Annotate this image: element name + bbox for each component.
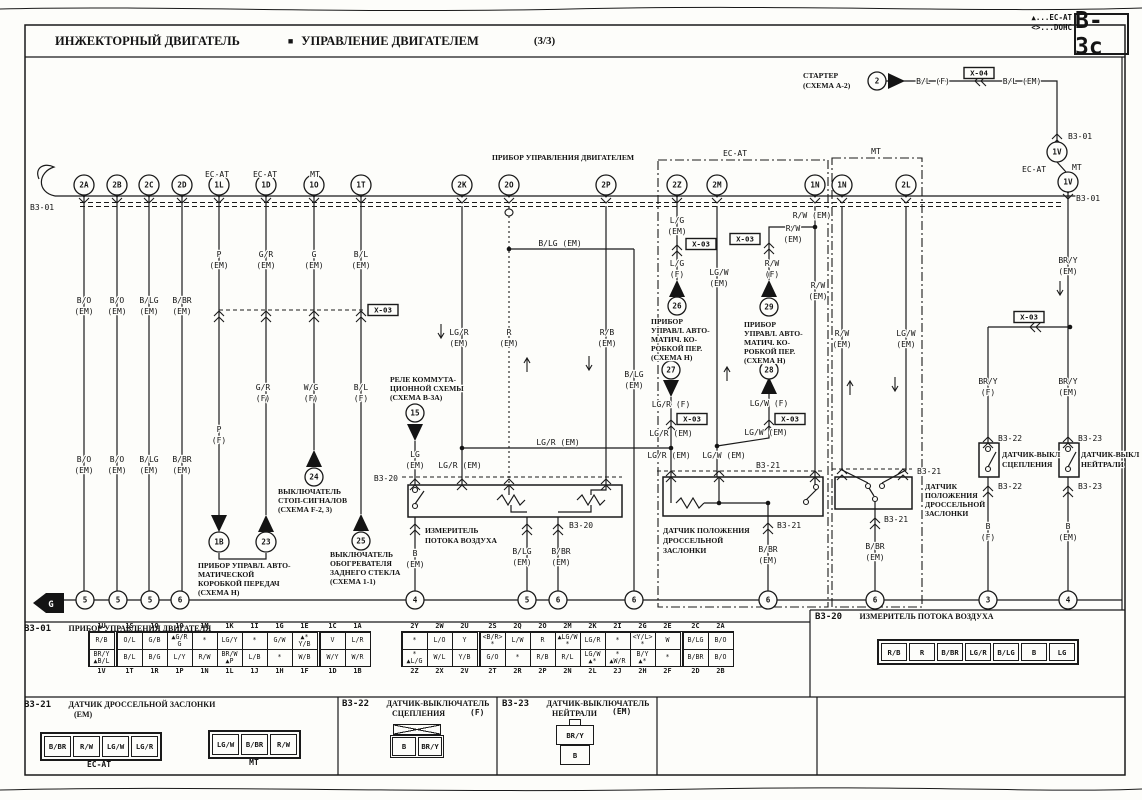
b320-section-header: B3-20 ИЗМЕРИТЕЛЬ ПОТОКА ВОЗДУХА [815, 612, 994, 622]
diagram-label: B/LG [139, 296, 158, 305]
diagram-label: ДАТЧИК-ВЫКЛ [1002, 450, 1061, 459]
pin-circle-label: 1T [356, 181, 366, 190]
diagram-label: ПРИБОР [744, 320, 776, 329]
diagram-label: B3-21 [756, 461, 780, 470]
diagram-label: ДАТЧИК-ВЫКЛ [1081, 450, 1140, 459]
pin-id: 1R [142, 667, 167, 676]
diagram-label: LG/R (EM) [438, 461, 481, 470]
diagram-label: LG/R [449, 328, 468, 337]
diagram-label: B3-22 [998, 434, 1022, 443]
pin-id: 2D [683, 667, 708, 676]
wire-labels: СТАРТЕР(СХЕМА А-2)B/L (F)B/L (EM)B3-01EC… [30, 71, 1140, 610]
diagram-label: (EM) [74, 466, 93, 475]
b323-connector: BR/YB [556, 719, 594, 765]
diagram-label: B/BR [172, 455, 191, 464]
pin-cell: LG/W ▲* [580, 649, 606, 667]
b320-code: B3-20 [815, 612, 842, 622]
diagram-label: ДРОССЕЛЬНОЙ [663, 536, 723, 545]
bullet-icon: ■ [288, 36, 293, 46]
pin-id: 1V [89, 667, 114, 676]
diagram-label: (EM) [304, 261, 323, 270]
b301-column: 2WL/OW/L2X [427, 632, 452, 666]
pin-cell: W [655, 632, 681, 650]
pin-id: 1B [345, 667, 370, 676]
b301-column: 2CB/LGB/BR2D [680, 632, 708, 666]
diagram-label: (F) [765, 270, 779, 279]
pin-cell: G/B [142, 632, 168, 650]
diagram-label: (EM) [709, 279, 728, 288]
airflow-meter-box [408, 485, 622, 517]
diagram-label: EC-AT [723, 149, 747, 158]
diagram-label: B/L (F) [916, 77, 950, 86]
pin-cell: B/Y ▲* [630, 649, 656, 667]
b323-title-1: ДАТЧИК-ВЫКЛЮЧАТЕЛЬ [547, 699, 650, 708]
pin-cell: LG/R [580, 632, 606, 650]
b301-column: 2M▲LG/W *R/L2N [555, 632, 580, 666]
diagram-label: B3-23 [1078, 434, 1102, 443]
pin-circle-label: 6 [556, 596, 561, 605]
b301-column: 2ORR/B2P [530, 632, 555, 666]
diagram-label: LG [410, 450, 420, 459]
diagram-label: R/W [765, 259, 780, 268]
pin-cell: L/Y [167, 649, 193, 667]
connector-code-label: X-04 [970, 69, 988, 78]
pin-cell: W/R [345, 649, 371, 667]
diagram-label: (EM) [865, 553, 884, 562]
diagram-label: (EM) [1058, 388, 1077, 397]
pin-id: 1T [117, 667, 142, 676]
pin-id: 2C [683, 622, 708, 631]
page-code: B-3c [1075, 14, 1128, 54]
b301-column: 2KLG/RLG/W ▲*2L [580, 632, 605, 666]
pin-id: 1K [217, 622, 242, 631]
b322-cells: BBR/Y [390, 735, 444, 758]
b321-ecat-caption: EC-AT [40, 760, 158, 769]
b301-column: 1QG/BB/G1R [142, 632, 167, 666]
diagram-label: L/G [670, 216, 685, 225]
pin-cell: <Y/L> * [630, 632, 656, 650]
pin-circle-label: 1N [810, 181, 820, 190]
diagram-label: MT [310, 170, 320, 179]
pin-id: 2E [655, 622, 680, 631]
pin-cell: * [242, 632, 268, 650]
pin-cell: W/L [427, 649, 453, 667]
flow-arrow-icon [847, 381, 853, 395]
pin-circle-label: 5 [148, 596, 153, 605]
b301-column: 1KLG/YBR/W ▲P1L [217, 632, 242, 666]
mt-option-box [832, 158, 922, 607]
pin-id: 2R [505, 667, 530, 676]
diagram-label: B/BR [551, 547, 570, 556]
pin-id: 2B [708, 667, 733, 676]
diagram-label: B/L [354, 383, 369, 392]
pin-circle-label: 6 [632, 596, 637, 605]
diagram-label: B3-22 [998, 482, 1022, 491]
b301-block: 2Y** ▲L/G2Z2WL/OW/L2X2UYY/B2V2S<B/R> *G/… [401, 631, 734, 667]
pin-cell: LG/Y [217, 632, 243, 650]
diagram-label: (EM) [597, 339, 616, 348]
b301-code: B3-01 [24, 624, 51, 634]
pin-circle-label: 2Z [672, 181, 682, 190]
pin-cell: B/LG [683, 632, 709, 650]
diagram-label: (EM) [896, 340, 915, 349]
b321-mt-caption: MT [208, 758, 300, 767]
diagram-label: EC-AT [1022, 165, 1046, 174]
connector-code-label: X-03 [1020, 313, 1038, 322]
b320-connector: R/BRB/BRLG/RB/LGBLG [877, 639, 1079, 665]
b321-mt-connector: LG/WB/BRR/W [208, 730, 301, 759]
b322-code: B3-22 [342, 699, 369, 709]
pin-cell: * [655, 649, 681, 667]
pin-cell: * ▲W/R [605, 649, 631, 667]
diagram-label: MT [871, 147, 881, 156]
diagram-label: (СХЕМА А-2) [803, 81, 851, 90]
pin-cell: W/B [292, 649, 318, 667]
pin-cell: L/R [345, 632, 371, 650]
pin-cell: Y [452, 632, 478, 650]
pin-cell: * [505, 649, 531, 667]
diagram-label: СТОП-СИГНАЛОВ [278, 496, 347, 505]
pin-cell: L/B [242, 649, 268, 667]
diagram-label: B/LG (EM) [538, 239, 581, 248]
wiring-diagram-canvas: X-04X-03X-03X-03X-03X-03X-03 2A2B2C2D1L1… [0, 0, 1142, 800]
diagram-label: EC-AT [205, 170, 229, 179]
diagram-label: B3-21 [884, 515, 908, 524]
diagram-label: ЗАДНЕГО СТЕКЛА [330, 568, 401, 577]
pin-cell: BR/Y [418, 737, 442, 756]
pin-circle-label: 28 [764, 366, 774, 375]
diagram-label: B/O [110, 296, 125, 305]
diagram-label: ДАТЧИК ПОЛОЖЕНИЯ [663, 526, 750, 535]
pin-id: 1I [242, 622, 267, 631]
pin-cell: B/O [708, 632, 734, 650]
inline-connector-codes: X-04X-03X-03X-03X-03X-03X-03 [368, 68, 1044, 425]
pin-circle-label: 24 [309, 473, 319, 482]
pin-circle-label: 6 [178, 596, 183, 605]
junction-dot [715, 444, 720, 449]
diagram-label: (EM) [107, 466, 126, 475]
diagram-label: РОБКОЙ ПЕР. [651, 344, 702, 353]
pin-cell: B [1021, 643, 1047, 661]
legend-dohc: <>...DOHC [1012, 23, 1072, 33]
tps-ecat-box [663, 477, 823, 516]
diagram-label: (EM) [783, 235, 802, 244]
pin-circle-label: 1D [261, 181, 271, 190]
pin-circle-label: 2D [177, 181, 187, 190]
diagram-label: R [507, 328, 512, 337]
pin-circle-label: 2K [457, 181, 467, 190]
flow-arrow-icon [586, 356, 592, 370]
connector-code-label: X-03 [692, 240, 710, 249]
b301-column: 2I** ▲W/R2J [605, 632, 630, 666]
pin-id: 2Q [505, 622, 530, 631]
pin-id: 2K [580, 622, 605, 631]
b301-column: 2UYY/B2V [452, 632, 477, 666]
diagram-label: P [217, 250, 222, 259]
b301-column: 1UR/BBR/Y ▲B/L1V [89, 632, 114, 666]
diagram-label: МАТИЧЕСКОЙ [198, 570, 254, 579]
diagram-label: R/B [600, 328, 615, 337]
diagram-label: G [312, 250, 317, 259]
pin-id: 2M [555, 622, 580, 631]
pin-circle-label: 1V [1052, 148, 1062, 157]
flow-arrow-icon [892, 377, 898, 391]
diagram-label: B [1066, 522, 1071, 531]
pin-id: 2N [555, 667, 580, 676]
pin-cell: G/W [267, 632, 293, 650]
diagram-label: (EM) [512, 558, 531, 567]
diagram-label: LG/R (F) [652, 400, 691, 409]
diagram-label: (EM) [172, 466, 191, 475]
diagram-label: G [48, 600, 53, 610]
pin-cell: B [392, 737, 416, 756]
diagram-label: BR/Y [1058, 377, 1077, 386]
pin-cell: O/L [117, 632, 143, 650]
pin-circle-label: 3 [986, 596, 991, 605]
diagram-label: КОРОБКОЙ ПЕРЕДАЧ [198, 579, 280, 588]
pin-circle-label: 1N [837, 181, 847, 190]
pin-id: 2G [630, 622, 655, 631]
diagram-label: ПОЛОЖЕНИЯ [925, 491, 978, 500]
pin-id: 1Q [142, 622, 167, 631]
diagram-label: ПРИБОР УПРАВЛ. АВТО- [198, 561, 291, 570]
diagram-label: BR/Y [1058, 256, 1077, 265]
pin-circle-label: 2P [601, 181, 611, 190]
diagram-label: (EM) [139, 466, 158, 475]
connector-arrow-icons [211, 73, 905, 532]
diagram-label: (СХЕМА Н) [198, 588, 240, 597]
diagram-label: (EM) [107, 307, 126, 316]
diagram-label: УПРАВЛ. АВТО- [744, 329, 803, 338]
junction-dot [669, 446, 674, 451]
diagram-label: B/L (EM) [1003, 77, 1042, 86]
junction-dot [766, 501, 771, 506]
b321-ecat-connector: B/BRR/WLG/WLG/R [40, 732, 162, 761]
pin-cell: R/L [555, 649, 581, 667]
pin-cell: L/W [505, 632, 531, 650]
diagram-label: (EM) [449, 339, 468, 348]
pin-id: 2T [480, 667, 505, 676]
pin-id: 2A [708, 622, 733, 631]
diagram-label: MT [1072, 163, 1082, 172]
pin-cell: LG/W [212, 734, 239, 755]
flow-arrow-icon [524, 358, 530, 372]
flow-arrow-icon [438, 324, 444, 338]
pin-id: 2Y [402, 622, 427, 631]
diagram-label: (F) [304, 394, 318, 403]
diagram-label: (F) [981, 533, 995, 542]
connector-code-label: X-03 [781, 415, 799, 424]
diagram-label: EC-AT [253, 170, 277, 179]
pin-circle-label: 2 [875, 77, 880, 86]
diagram-label: B/L [354, 250, 369, 259]
pin-circle-label: 2L [901, 181, 911, 190]
diagram-label: УПРАВЛ. АВТО- [651, 326, 710, 335]
diagram-label: ДРОССЕЛЬНОЙ [925, 500, 985, 509]
diagram-label: (EM) [351, 261, 370, 270]
diagram-label: СЦЕПЛЕНИЯ [1002, 460, 1053, 469]
diagram-label: B/O [77, 455, 92, 464]
diagram-label: B/BR [865, 542, 884, 551]
b301-column: 2EW*2F [655, 632, 680, 666]
pin-circle-label: 2M [712, 181, 722, 190]
junction-dot [717, 501, 722, 506]
title-band: ИНЖЕКТОРНЫЙ ДВИГАТЕЛЬ ■ УПРАВЛЕНИЕ ДВИГА… [25, 25, 1075, 57]
page-counter: (3/3) [534, 35, 555, 47]
pin-cell: LG/W [102, 736, 129, 757]
pin-cell: ▲LG/W * [555, 632, 581, 650]
pin-id: 2W [427, 622, 452, 631]
pin-id: 1H [267, 667, 292, 676]
b323-sub: (ЕМ) [612, 707, 631, 716]
diagram-label: ЗАСЛОНКИ [925, 509, 968, 518]
pin-circle-label: 1B [214, 538, 224, 547]
pin-id: 1N [192, 667, 217, 676]
diagram-label: ДАТЧИК [925, 482, 958, 491]
b322-sub: (F) [470, 708, 484, 717]
pin-circle-label: 26 [672, 302, 682, 311]
pin-cell: R/B [881, 643, 907, 661]
connector-arrow-icon [888, 73, 905, 89]
diagram-label: (EM) [405, 461, 424, 470]
pin-cell: R [909, 643, 935, 661]
pin-circle-label: 1O [309, 181, 319, 190]
diagram-label: РЕЛЕ КОММУТА- [390, 375, 457, 384]
diagram-label: B/O [77, 296, 92, 305]
pin-cell: R/B [530, 649, 556, 667]
b323-title-2: НЕЙТРАЛИ [552, 709, 649, 718]
flow-arrow-icon [1057, 281, 1063, 295]
diagram-label: (СХЕМА Н) [744, 356, 786, 365]
pin-cell: Y/B [452, 649, 478, 667]
b301-column: 2AB/OB/O2B [708, 632, 733, 666]
junction-dot [507, 247, 512, 252]
b301-column: 1CVW/Y1D [317, 632, 345, 666]
pin-id: 2O [530, 622, 555, 631]
diagram-label: B/BR [172, 296, 191, 305]
diagram-label: (EM) [1058, 533, 1077, 542]
pin-cell: BR/Y ▲B/L [89, 649, 115, 667]
flow-arrow-icon [724, 367, 730, 381]
diagram-label: R/W [811, 281, 826, 290]
pin-cell: * [402, 632, 428, 650]
pin-cell: ▲G/R G [167, 632, 193, 650]
diagram-label: ОБОГРЕВАТЕЛЯ [330, 559, 392, 568]
connector-crossing-icon [898, 469, 908, 480]
pin-id: 2X [427, 667, 452, 676]
diagram-label: LG/W [709, 268, 728, 277]
pin-id: 1D [320, 667, 345, 676]
diagram-label: ПРИБОР [651, 317, 683, 326]
diagram-label: ИЗМЕРИТЕЛЬ [425, 526, 478, 535]
clutch-switch-box [979, 443, 999, 477]
connector-arrow-icon [407, 424, 423, 441]
pin-cell: B/BR [937, 643, 963, 661]
pin-id: 1F [292, 667, 317, 676]
pin-cell: ▲* Y/B [292, 632, 318, 650]
pin-cell: B [560, 745, 590, 765]
diagram-label: (F) [670, 270, 684, 279]
pin-id: 2I [605, 622, 630, 631]
pin-cell: B/O [708, 649, 734, 667]
neutral-switch-box [1059, 443, 1079, 477]
pin-id: 1G [267, 622, 292, 631]
b301-column: 2QL/W*2R [505, 632, 530, 666]
diagram-label: (EM) [256, 261, 275, 270]
pin-cell: W/Y [320, 649, 346, 667]
diagram-label: B3-21 [777, 521, 801, 530]
diagram-label: ВЫКЛЮЧАТЕЛЬ [278, 487, 341, 496]
diagram-label: (EM) [832, 340, 851, 349]
pin-cell: V [320, 632, 346, 650]
pin-id: 2U [452, 622, 477, 631]
b321-sub: (ЕМ) [74, 710, 215, 719]
pin-circle-label: 2B [112, 181, 122, 190]
pin-id: 1M [192, 622, 217, 631]
pin-cell: R [530, 632, 556, 650]
diagram-label: R/W [835, 329, 850, 338]
diagram-label: B [413, 549, 418, 558]
b322-section-header: B3-22 ДАТЧИК-ВЫКЛЮЧАТЕЛЬ СЦЕПЛЕНИЯ [342, 699, 489, 718]
connector-code-label: X-03 [374, 306, 392, 315]
pin-cell: L/O [427, 632, 453, 650]
pin-id: 1J [242, 667, 267, 676]
pin-id: 2P [530, 667, 555, 676]
diagram-label: МАТИЧ. КО- [744, 338, 791, 347]
diagram-label: (EM) [74, 307, 93, 316]
diagram-label: LG/W (EM) [702, 451, 745, 460]
pin-id: 2Z [402, 667, 427, 676]
diagram-label: B/BR [758, 545, 777, 554]
pin-cell: BR/W ▲P [217, 649, 243, 667]
pin-circle-label: 27 [666, 366, 675, 375]
diagram-label: (F) [212, 436, 226, 445]
diagram-label: (EM) [405, 560, 424, 569]
pin-circle-label: 5 [525, 596, 530, 605]
b301-column: 2S<B/R> *G/O2T [477, 632, 505, 666]
diagram-label: B3-01 [30, 203, 54, 212]
page-subtitle: УПРАВЛЕНИЕ ДВИГАТЕЛЕМ [301, 34, 479, 49]
pin-cell: R/W [270, 734, 297, 755]
b301-column: 1AL/RW/R1B [345, 632, 370, 666]
diagram-label: (EM) [758, 556, 777, 565]
pin-circle-label: 5 [116, 596, 121, 605]
diagram-label: РОБКОЙ ПЕР. [744, 347, 795, 356]
b301-column: 1O▲G/R GL/Y1P [167, 632, 192, 666]
b301-column: 1M*R/W1N [192, 632, 217, 666]
diagram-label: ПОТОКА ВОЗДУХА [425, 536, 497, 545]
pin-cell: G/O [480, 649, 506, 667]
pin-id: 1C [320, 622, 345, 631]
b301-block: 1UR/BBR/Y ▲B/L1V1SO/LB/L1T1QG/BB/G1R1O▲G… [88, 631, 371, 667]
pin-id: 1L [217, 667, 242, 676]
diagram-label: (F) [354, 394, 368, 403]
connector-arrow-icon [258, 515, 274, 532]
diagram-label: G/R [259, 250, 274, 259]
diagram-label: LG/W (F) [750, 399, 789, 408]
diagram-label: R/W [786, 224, 801, 233]
junction-dot [1068, 325, 1073, 330]
pin-circle-label: 23 [261, 538, 271, 547]
pin-circle-label: 2C [144, 181, 154, 190]
pin-circle-label: 5 [83, 596, 88, 605]
diagram-label: L/G [670, 259, 685, 268]
diagram-label: (EM) [139, 307, 158, 316]
diagram-label: B3-20 [374, 474, 398, 483]
diagram-label: B3-01 [1076, 194, 1100, 203]
diagram-label: ВЫКЛЮЧАТЕЛЬ [330, 550, 393, 559]
connector-arrow-icon [669, 280, 685, 297]
